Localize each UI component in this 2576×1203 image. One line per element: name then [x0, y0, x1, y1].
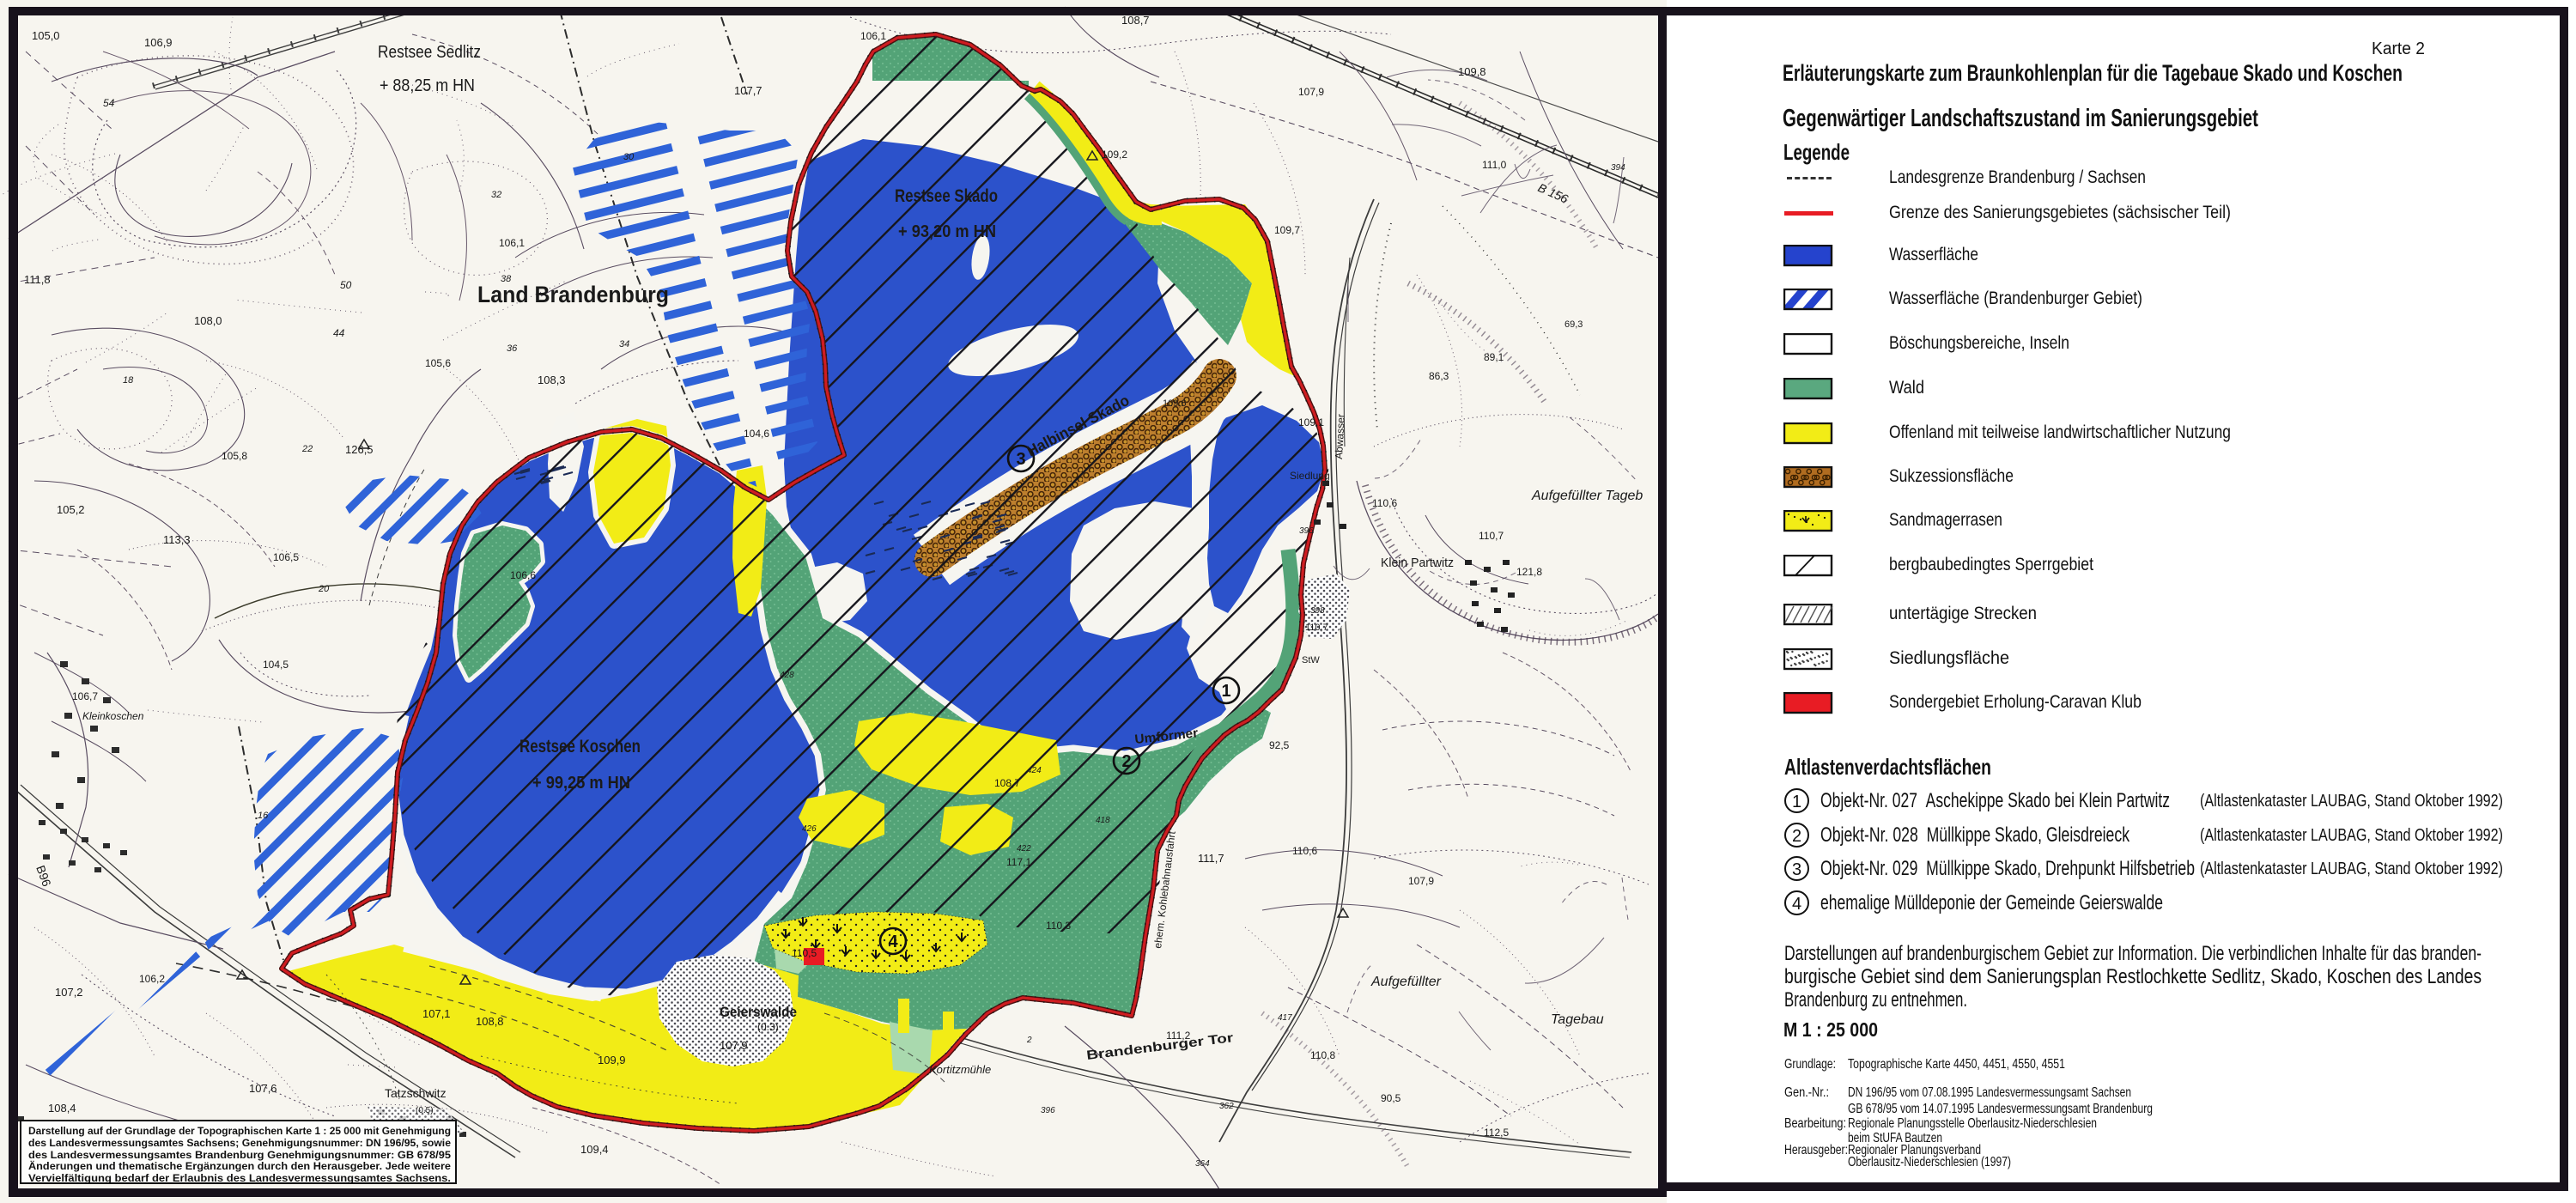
svg-text:396: 396: [1299, 526, 1314, 536]
svg-text:107,2: 107,2: [55, 986, 83, 999]
svg-text:109,7: 109,7: [1274, 224, 1300, 236]
svg-text:Aufgefüllter: Aufgefüllter: [1370, 975, 1442, 989]
svg-text:394: 394: [1611, 163, 1625, 173]
svg-text:1: 1: [1221, 682, 1230, 701]
svg-text:89,1: 89,1: [1484, 351, 1504, 363]
svg-text:50: 50: [340, 279, 352, 291]
svg-text:106,9: 106,9: [144, 36, 173, 49]
svg-text:2: 2: [1121, 752, 1131, 771]
svg-text:22: 22: [301, 444, 313, 454]
svg-text:110,3: 110,3: [1046, 920, 1071, 932]
svg-text:3: 3: [1016, 450, 1025, 469]
svg-text:112,5: 112,5: [1484, 1127, 1509, 1139]
svg-text:105,0: 105,0: [32, 29, 60, 42]
svg-text:54: 54: [103, 97, 115, 109]
svg-text:106,1: 106,1: [860, 30, 886, 42]
svg-text:428: 428: [780, 671, 794, 680]
svg-text:106,6: 106,6: [510, 569, 536, 581]
svg-text:105,6: 105,6: [425, 357, 451, 369]
svg-text:Geierswalde: Geierswalde: [720, 1004, 797, 1020]
svg-text:107,1: 107,1: [422, 1007, 451, 1020]
svg-text:108,3: 108,3: [538, 374, 566, 386]
svg-text:Siedlung: Siedlung: [1290, 470, 1330, 482]
svg-text:+ 88,25 m HN: + 88,25 m HN: [380, 76, 475, 95]
svg-text:Land Brandenburg: Land Brandenburg: [477, 282, 669, 307]
svg-text:108,8: 108,8: [476, 1015, 504, 1028]
svg-text:107,9: 107,9: [1408, 875, 1434, 887]
svg-text:18: 18: [123, 375, 134, 386]
svg-text:396: 396: [1041, 1106, 1055, 1115]
svg-text:104,5: 104,5: [263, 659, 289, 671]
svg-text:111,0: 111,0: [1482, 159, 1507, 171]
svg-text:90,5: 90,5: [1381, 1092, 1401, 1104]
svg-text:362: 362: [1219, 1102, 1234, 1111]
svg-text:121,8: 121,8: [1516, 566, 1542, 578]
svg-text:StW: StW: [1302, 655, 1320, 665]
svg-text:Tagebau: Tagebau: [1551, 1012, 1604, 1027]
svg-text:109,6: 109,6: [1163, 398, 1187, 409]
svg-text:Restsee Sedlitz: Restsee Sedlitz: [378, 43, 481, 62]
svg-text:30: 30: [623, 152, 635, 162]
svg-text:86,3: 86,3: [1429, 370, 1449, 382]
svg-text:107,9: 107,9: [1298, 86, 1324, 98]
svg-text:4: 4: [888, 933, 898, 951]
svg-text:69,3: 69,3: [1564, 319, 1583, 330]
svg-text:20: 20: [318, 584, 330, 594]
svg-text:105,8: 105,8: [222, 450, 247, 462]
svg-text:92,5: 92,5: [1269, 739, 1290, 751]
svg-text:16: 16: [258, 811, 269, 821]
svg-text:107,6: 107,6: [249, 1082, 277, 1095]
svg-text:109,1: 109,1: [1298, 416, 1324, 428]
svg-text:109,4: 109,4: [580, 1143, 609, 1156]
svg-text:34: 34: [619, 339, 629, 349]
svg-text:107,7: 107,7: [734, 84, 762, 97]
svg-text:44: 44: [333, 327, 345, 339]
svg-text:109,2: 109,2: [1102, 149, 1127, 161]
svg-text:109,9: 109,9: [598, 1054, 626, 1066]
svg-text:(0.3): (0.3): [757, 1021, 779, 1033]
svg-text:111,8: 111,8: [24, 273, 51, 286]
svg-text:Tatzschwitz: Tatzschwitz: [385, 1086, 447, 1100]
svg-text:Kleinkoschen: Kleinkoschen: [82, 710, 144, 722]
svg-text:106,1: 106,1: [499, 237, 525, 249]
svg-text:110,8: 110,8: [1310, 1049, 1335, 1061]
svg-text:126,5: 126,5: [345, 443, 374, 456]
svg-text:417: 417: [1278, 1013, 1292, 1023]
svg-text:+ 99,25 m HN: + 99,25 m HN: [532, 774, 630, 793]
svg-text:Kortitzmühle: Kortitzmühle: [929, 1063, 991, 1076]
svg-text:109,8: 109,8: [1458, 65, 1486, 78]
svg-text:110,6: 110,6: [1372, 497, 1397, 509]
svg-text:418: 418: [1096, 816, 1110, 825]
svg-text:107,9: 107,9: [720, 1039, 748, 1052]
svg-text:364: 364: [1195, 1159, 1210, 1169]
svg-text:110,7: 110,7: [1479, 530, 1504, 542]
svg-text:2: 2: [1026, 1036, 1032, 1045]
svg-text:113,3: 113,3: [163, 533, 191, 546]
svg-text:424: 424: [1027, 766, 1042, 775]
svg-text:36: 36: [507, 343, 518, 354]
svg-text:426: 426: [802, 824, 817, 834]
svg-text:Abwasser: Abwasser: [1333, 414, 1347, 459]
svg-text:108,7: 108,7: [1121, 14, 1150, 27]
svg-text:106,7: 106,7: [72, 690, 98, 702]
svg-text:108,4: 108,4: [48, 1102, 76, 1115]
svg-text:110,5: 110,5: [792, 947, 817, 959]
svg-text:117,1: 117,1: [1006, 856, 1031, 868]
svg-text:108,0: 108,0: [194, 314, 222, 327]
svg-text:+ 93,20 m HN: + 93,20 m HN: [898, 222, 996, 241]
svg-text:110,7: 110,7: [1305, 623, 1328, 633]
svg-text:Aufgefüllter Tageb: Aufgefüllter Tageb: [1531, 489, 1643, 503]
svg-text:(0.5): (0.5): [416, 1106, 434, 1115]
svg-text:38: 38: [501, 274, 512, 284]
svg-text:Klein Partwitz: Klein Partwitz: [1381, 556, 1454, 570]
svg-text:111,2: 111,2: [1166, 1030, 1191, 1042]
svg-text:110,6: 110,6: [1292, 845, 1317, 857]
svg-text:105,2: 105,2: [57, 503, 85, 516]
svg-text:108,7: 108,7: [994, 777, 1020, 789]
svg-text:111,7: 111,7: [1198, 852, 1224, 865]
svg-text:Restsee Koschen: Restsee Koschen: [519, 737, 641, 756]
svg-text:398: 398: [1310, 606, 1325, 616]
svg-text:106,5: 106,5: [273, 551, 299, 563]
svg-text:Restsee Skado: Restsee Skado: [895, 186, 998, 206]
svg-text:106,2: 106,2: [139, 973, 165, 985]
svg-text:32: 32: [491, 190, 501, 200]
svg-text:422: 422: [1017, 844, 1031, 854]
svg-text:104,6: 104,6: [744, 428, 769, 440]
